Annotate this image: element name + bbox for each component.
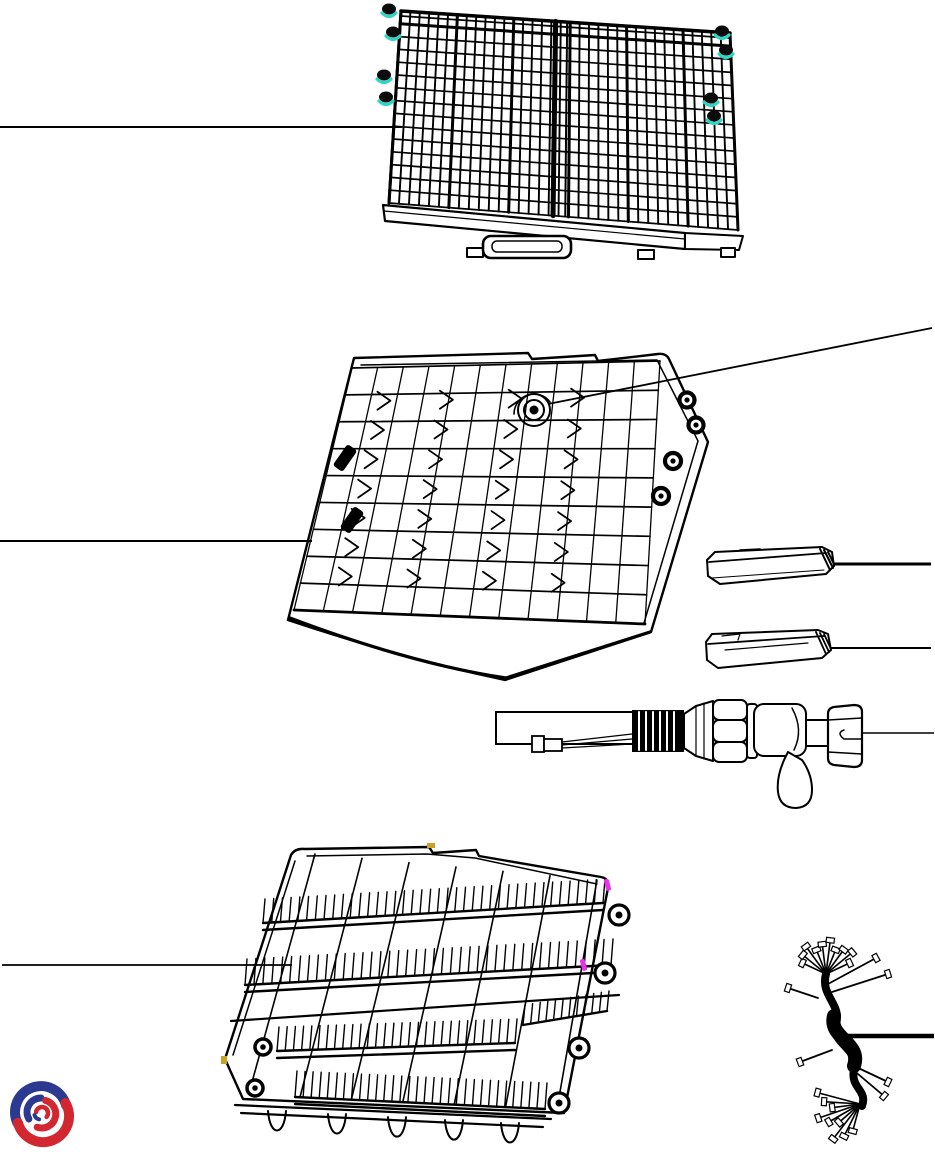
- upper-rack-illustration: [377, 4, 743, 260]
- wire-harness-illustration: [784, 937, 892, 1143]
- inlet-hose-illustration: [496, 700, 862, 808]
- rail-cap-a-illustration: [707, 547, 834, 584]
- callout-leader-lines: [0, 127, 934, 1036]
- brand-logo: [15, 1086, 69, 1142]
- rail-cap-b-illustration: [706, 630, 831, 668]
- diagram-canvas: [0, 0, 935, 1152]
- parts-diagram-page: [0, 0, 935, 1152]
- middle-rack-illustration: [288, 353, 708, 680]
- lower-rack-illustration: [221, 843, 629, 1143]
